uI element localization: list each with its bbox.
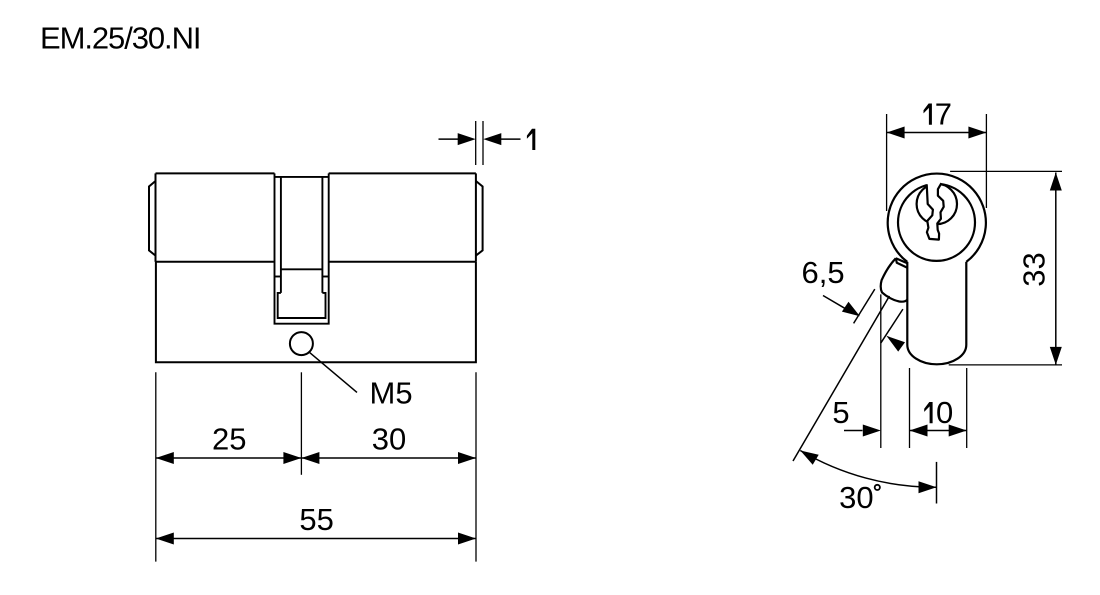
svg-text:6,5: 6,5 [802,255,845,290]
svg-text:7: 7 [935,97,952,132]
svg-text:55: 55 [299,502,333,537]
svg-text:5: 5 [832,395,849,430]
svg-text:M5: M5 [370,376,413,411]
svg-text:30: 30 [839,480,873,515]
svg-text:0: 0 [936,395,953,430]
svg-text:33: 33 [1017,252,1052,286]
svg-text:25: 25 [212,422,246,457]
svg-text:30: 30 [372,422,406,457]
svg-text:EM.25/30.NI: EM.25/30.NI [40,21,202,56]
